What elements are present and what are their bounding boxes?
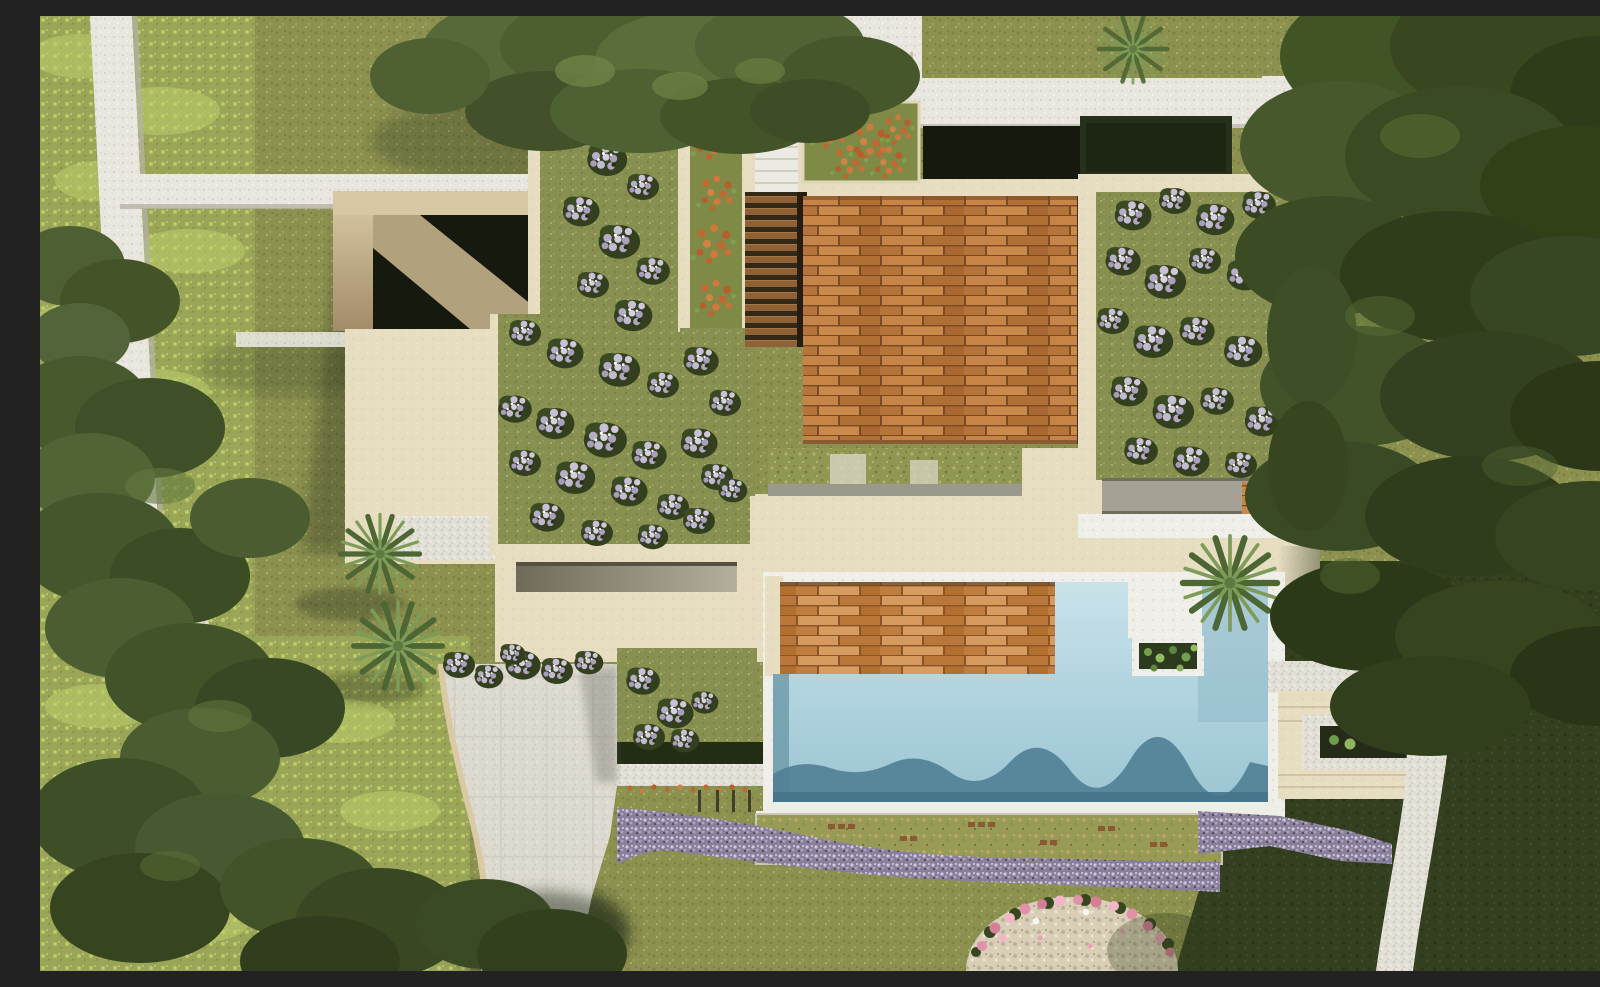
pool-complex — [763, 572, 1285, 822]
entry-court — [333, 188, 553, 331]
long-bench — [505, 554, 748, 600]
planter-paving — [910, 460, 938, 484]
planter-paving — [830, 454, 866, 484]
bench-inner-shadow — [516, 562, 737, 566]
stone-path-strip — [236, 332, 348, 347]
trees-right-mass — [1235, 16, 1600, 756]
deck-edge-bottom — [803, 440, 1077, 444]
render-canvas — [40, 16, 1600, 971]
hedge-court-inner — [1086, 123, 1226, 172]
deck-side-paving — [1022, 448, 1080, 496]
court-wall-top — [333, 191, 540, 215]
pergola-slats — [745, 192, 805, 347]
linear-planter-strip — [768, 448, 1022, 488]
timber-deck-lower — [780, 582, 1055, 674]
sunken-patio — [923, 126, 1080, 179]
deck-edge-top — [803, 196, 1077, 200]
slot-edge — [1102, 478, 1250, 481]
garden-rim-bottom — [498, 544, 750, 556]
bench-basin — [516, 562, 737, 592]
court-wall-west — [333, 215, 373, 331]
aerial-villa-render — [40, 16, 1600, 971]
deck-upper — [803, 196, 1077, 444]
gravel-band — [617, 764, 779, 786]
slot-edge — [1102, 511, 1250, 514]
wing-gray-slot — [1102, 478, 1250, 514]
timber-deck-upper — [768, 196, 1087, 496]
planter-gray-edge — [768, 484, 1022, 496]
deck-lower-edge — [780, 582, 1055, 586]
